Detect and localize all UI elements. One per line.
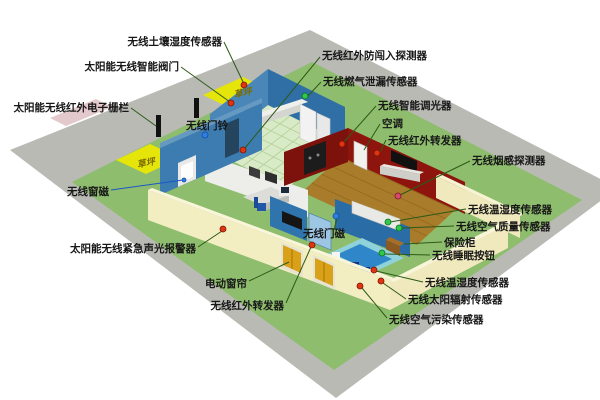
label-ir-intrusion-detector: 无线红外防闯入探测器: [321, 49, 427, 62]
label-solar-smart-valve: 太阳能无线智能阀门: [84, 60, 180, 73]
label-solar-emergency-alarm: 太阳能无线紧急声光报警器: [69, 242, 196, 255]
computer-screen: [281, 187, 289, 193]
sensor-dot-temp-humidity-indoor: [385, 219, 391, 225]
sensor-dot-sleep-button: [379, 250, 385, 256]
label-gas-leak-sensor: 无线燃气泄漏传感器: [322, 75, 418, 88]
sensor-dot-intrusion: [240, 147, 246, 153]
sensor-dot-temp-humidity-outdoor: [371, 267, 377, 273]
label-air-quality-sensor: 无线空气质量传感器: [455, 220, 551, 233]
sensor-dot-doorbell: [202, 132, 208, 138]
label-wireless-doorbell: 无线门铃: [185, 119, 228, 132]
label-safe-box: 保险柜: [443, 236, 476, 249]
smart-home-isometric-diagram: 无线土壤湿度传感器 太阳能无线智能阀门 太阳能无线红外电子栅栏 无线门铃 无线窗…: [0, 0, 600, 400]
stereo-knob: [309, 157, 312, 160]
stereo-knob: [317, 154, 320, 157]
label-wireless-window-magnet: 无线窗磁: [66, 185, 109, 198]
fence-post-icon: [194, 98, 199, 118]
sensor-dot-solar-radiation: [378, 278, 384, 284]
label-sleep-button: 无线睡眠按钮: [431, 249, 495, 262]
office-chair-icon: [257, 203, 266, 211]
fence-post-icon: [156, 115, 161, 137]
label-air-conditioner: 空调: [382, 117, 403, 130]
label-air-pollution-sensor: 无线空气污染传感器: [388, 313, 484, 326]
label-solar-ir-electronic-fence: 太阳能无线红外电子栅栏: [13, 101, 130, 114]
label-ir-repeater-top: 无线红外转发器: [387, 134, 462, 147]
label-door-magnet: 无线门磁: [302, 227, 345, 240]
sensor-dot-dimmer: [339, 141, 345, 147]
sensor-dot-air-quality: [396, 225, 402, 231]
sensor-dot-ir-repeater-bottom: [309, 242, 315, 248]
label-ir-repeater-bottom: 无线红外转发器: [210, 299, 285, 312]
sensor-dot-air-pollution: [357, 283, 363, 289]
office-chair-back: [254, 197, 258, 208]
label-electric-curtain: 电动窗帘: [205, 277, 247, 290]
sensor-dot-smart-valve: [228, 100, 234, 106]
smart-home-diagram-page: 无线土壤湿度传感器 太阳能无线智能阀门 太阳能无线红外电子栅栏 无线门铃 无线窗…: [0, 0, 600, 400]
label-temp-humidity-sensor-outdoor: 无线温湿度传感器: [424, 276, 509, 289]
sensor-dot-ir-repeater-top: [374, 150, 380, 156]
sensor-dot-gas-leak: [302, 93, 308, 99]
sensor-dot-smoke: [395, 193, 401, 199]
sensor-dot-door-magnet: [333, 213, 339, 219]
label-smart-dimmer: 无线智能调光器: [377, 99, 452, 112]
sensor-dot-window-magnet: [182, 178, 186, 182]
label-soil-moisture-sensor: 无线土壤湿度传感器: [127, 35, 223, 48]
sensor-dot-emergency-alarm: [220, 226, 226, 232]
label-smoke-detector: 无线烟感探测器: [471, 154, 546, 167]
label-solar-radiation-sensor: 无线太阳辐射传感器: [407, 293, 503, 306]
label-temp-humidity-sensor-indoor: 无线温湿度传感器: [467, 203, 552, 216]
